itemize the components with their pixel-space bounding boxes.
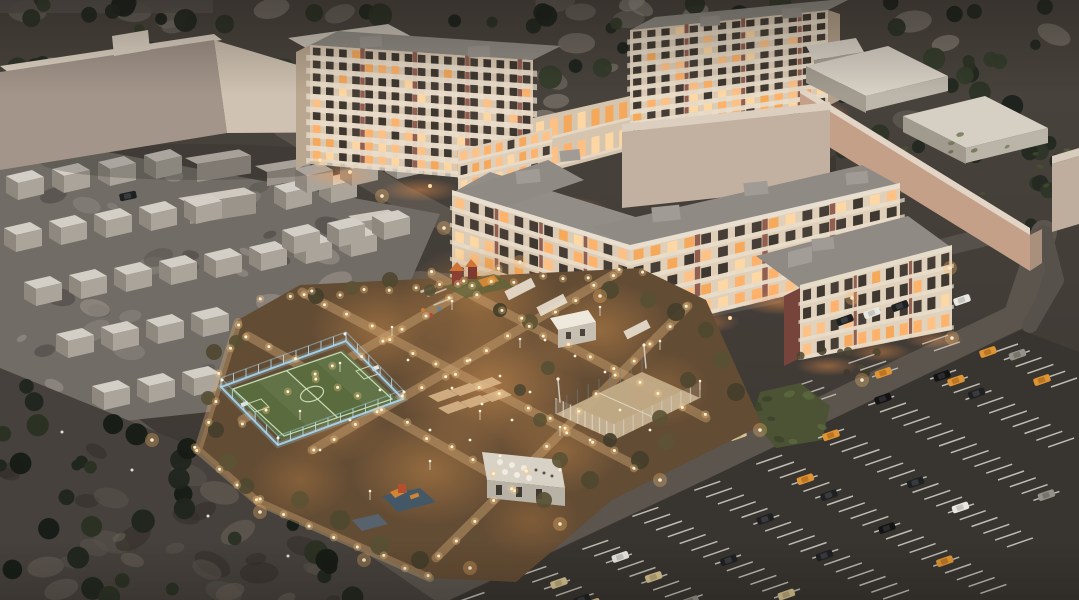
tree [27, 414, 49, 436]
window [844, 278, 852, 291]
path-light [561, 277, 564, 280]
light-dot [535, 469, 538, 472]
window [483, 126, 491, 135]
tree [103, 414, 123, 434]
window [858, 293, 866, 306]
tree [818, 346, 827, 355]
light-glow [796, 356, 860, 376]
lamp-head [699, 380, 702, 383]
window [352, 128, 360, 136]
lit-window [392, 118, 400, 126]
street-lamp [598, 294, 602, 298]
lit-window [461, 150, 468, 160]
lamp-head [339, 362, 342, 365]
path-light [310, 290, 313, 293]
lit-window [872, 270, 880, 284]
light-glow [300, 164, 380, 188]
lit-window [472, 148, 479, 158]
path-light [289, 295, 292, 298]
window [405, 106, 413, 114]
window [392, 105, 400, 113]
tree [844, 347, 853, 356]
window [676, 95, 684, 103]
path-light [444, 375, 447, 378]
window [927, 256, 935, 270]
light-dot [469, 439, 472, 442]
window [510, 128, 518, 137]
tree [844, 369, 850, 375]
path-light [425, 437, 428, 440]
window [378, 117, 386, 125]
path-light [577, 410, 580, 413]
window [431, 95, 439, 103]
window [914, 260, 922, 274]
path-light [498, 392, 501, 395]
lit-window [444, 162, 452, 171]
lit-window [591, 136, 599, 155]
lit-window [510, 114, 518, 123]
street-lamp [850, 296, 854, 300]
path-light [406, 421, 409, 424]
window [927, 276, 935, 290]
lamp-head [391, 326, 394, 329]
street-lamp [658, 478, 662, 482]
path-light [618, 268, 621, 271]
lit-window [564, 114, 572, 133]
lit-window [326, 152, 334, 160]
light-dot [509, 462, 515, 468]
lit-window [927, 317, 935, 331]
window [444, 149, 452, 158]
path-light [345, 313, 348, 316]
window [326, 113, 334, 121]
lit-window [418, 147, 426, 156]
light-dot [526, 475, 532, 481]
path-light [525, 470, 528, 473]
lit-window [760, 95, 768, 103]
lit-window [457, 137, 465, 146]
window [352, 115, 360, 123]
light-dot [649, 429, 652, 432]
light-dot [604, 371, 607, 374]
lit-window [661, 97, 669, 105]
tree [514, 384, 526, 396]
path-light [401, 394, 404, 397]
lit-window [392, 144, 400, 153]
lit-window [605, 105, 613, 123]
path-light [217, 372, 220, 375]
aerial-render [0, 0, 1079, 600]
path-light [259, 297, 262, 300]
tree [382, 272, 398, 288]
window [858, 274, 866, 287]
path-light [528, 325, 531, 328]
path-light [633, 360, 636, 363]
light-dot [589, 439, 592, 442]
window [405, 146, 413, 155]
path-light [314, 373, 317, 376]
path-light [282, 513, 285, 516]
path-light [323, 303, 326, 306]
path-light [450, 445, 453, 448]
lamp-head [519, 338, 522, 341]
street-lamp [950, 336, 954, 340]
light-dot [514, 472, 520, 478]
path-light [574, 299, 577, 302]
lit-window [803, 325, 811, 338]
light-dot [437, 307, 441, 311]
window [803, 307, 811, 320]
window [543, 146, 550, 156]
window [339, 140, 347, 148]
tree [698, 322, 714, 338]
window [431, 148, 439, 157]
path-light [388, 338, 391, 341]
path-light [312, 449, 315, 452]
window [457, 124, 465, 133]
lit-window [872, 328, 880, 341]
lit-window [418, 134, 426, 143]
path-light [656, 392, 659, 395]
path-light [400, 328, 403, 331]
path-light [641, 271, 644, 274]
path-light [303, 293, 306, 296]
path-light [638, 381, 641, 384]
tree [727, 383, 745, 401]
light-dot [728, 316, 732, 320]
lit-window [483, 112, 491, 121]
lit-window [313, 138, 321, 146]
window [378, 104, 386, 112]
window [510, 101, 518, 110]
path-light [472, 458, 475, 461]
path-light [336, 386, 339, 389]
window [470, 138, 478, 147]
tree [84, 461, 97, 474]
path-light [241, 422, 244, 425]
path-light [506, 334, 509, 337]
light-glow [380, 178, 460, 202]
path-light [500, 309, 503, 312]
path-light [420, 386, 423, 389]
lit-window [378, 143, 386, 151]
path-light [612, 274, 615, 277]
path-light [456, 282, 459, 285]
lit-window [543, 131, 550, 141]
lit-window [704, 103, 712, 111]
tree [797, 352, 805, 360]
path-light [236, 484, 239, 487]
light-dot [502, 469, 508, 475]
lit-window [418, 160, 426, 169]
lit-window [313, 125, 321, 133]
path-light [475, 293, 478, 296]
lit-window [431, 161, 439, 170]
street-lamp [518, 260, 522, 264]
light-dot [497, 459, 503, 465]
path-light [360, 355, 363, 358]
street-lamp [948, 266, 952, 270]
lit-window [378, 130, 386, 138]
tree [81, 516, 102, 537]
path-light [339, 293, 342, 296]
lit-window [858, 331, 866, 344]
lit-window [365, 129, 373, 137]
lit-window [352, 141, 360, 149]
window [457, 110, 465, 119]
path-light [430, 270, 433, 273]
window [444, 96, 452, 105]
tree [640, 292, 656, 308]
lamp-head [659, 340, 662, 343]
play-tower [468, 266, 477, 279]
path-light [567, 343, 570, 346]
tree [330, 510, 350, 530]
tree [345, 281, 359, 295]
path-light [331, 364, 334, 367]
window [886, 267, 894, 281]
path-light [454, 373, 457, 376]
tree [168, 468, 190, 490]
light-dot [574, 355, 577, 358]
street-lamp [758, 428, 762, 432]
light-dot [207, 515, 210, 518]
tree [10, 453, 32, 475]
path-light [492, 472, 495, 475]
window [817, 303, 825, 316]
path-light [613, 449, 616, 452]
light-dot [428, 184, 432, 188]
path-light [478, 386, 481, 389]
path-light [314, 378, 317, 381]
lit-window [392, 158, 400, 167]
lit-window [496, 142, 503, 152]
window [326, 100, 334, 108]
path-light [648, 342, 651, 345]
lit-window [718, 101, 726, 109]
path-light [308, 525, 311, 528]
light-dot [529, 391, 532, 394]
window [457, 97, 465, 106]
path-light [587, 276, 590, 279]
path-light [448, 296, 451, 299]
path-light [589, 355, 592, 358]
path-light [376, 410, 379, 413]
path-light [214, 400, 217, 403]
light-dot [469, 359, 472, 362]
path-light [218, 468, 221, 471]
tree [658, 434, 674, 450]
path-light [685, 305, 688, 308]
tree [174, 498, 195, 519]
window [365, 103, 373, 111]
path-light [381, 340, 384, 343]
path-light [510, 487, 513, 490]
tree [552, 452, 568, 468]
path-light [415, 286, 418, 289]
window [523, 102, 531, 111]
path-light [549, 417, 552, 420]
light-dot [556, 377, 559, 380]
lit-window [531, 134, 538, 144]
path-light [354, 423, 357, 426]
path-light [388, 289, 391, 292]
path-light [229, 347, 232, 350]
window [339, 114, 347, 122]
lit-window [831, 300, 839, 313]
tree [603, 433, 617, 447]
lit-window [605, 132, 613, 151]
path-light [207, 421, 210, 424]
tree [25, 392, 44, 411]
path-light [371, 324, 374, 327]
path-light [669, 325, 672, 328]
lit-window [647, 99, 655, 107]
tree [652, 410, 668, 426]
window [470, 111, 478, 120]
lit-window [483, 99, 491, 108]
path-light [542, 335, 545, 338]
lit-window [817, 322, 825, 335]
light-dot [499, 375, 502, 378]
window [365, 116, 373, 124]
tree [131, 509, 154, 532]
light-dot [221, 379, 224, 382]
tree [837, 349, 844, 356]
light-dot [551, 475, 554, 478]
window [817, 285, 825, 298]
tree [713, 351, 731, 369]
window [470, 98, 478, 107]
path-light [497, 267, 500, 270]
light-dot [348, 170, 352, 174]
window [444, 123, 452, 132]
lit-window [844, 334, 852, 347]
path-light [411, 352, 414, 355]
light-dot [131, 469, 134, 472]
path-light [462, 280, 465, 283]
street-lamp [442, 226, 446, 230]
light-dot [407, 359, 410, 362]
path-light [363, 288, 366, 291]
lit-window [591, 108, 599, 127]
window [444, 109, 452, 118]
path-light [438, 283, 441, 286]
lit-window [405, 132, 413, 141]
lit-window [531, 148, 538, 158]
path-light [527, 407, 530, 410]
path-light [512, 281, 515, 284]
lit-window [619, 101, 627, 119]
light-dot [421, 308, 425, 312]
light-dot [429, 429, 432, 432]
street-lamp [558, 522, 562, 526]
light-dot [451, 387, 454, 390]
path-light [614, 374, 617, 377]
lit-window [378, 156, 386, 165]
lit-window [508, 154, 515, 164]
street-lamp [380, 194, 384, 198]
window [676, 107, 684, 115]
window [831, 337, 839, 350]
lit-window [519, 151, 526, 161]
lit-window [941, 314, 949, 328]
path-light [294, 357, 297, 360]
lit-window [519, 137, 526, 147]
street-lamp [318, 158, 322, 162]
light-dot [642, 343, 645, 346]
path-light [193, 446, 196, 449]
tree [19, 379, 34, 394]
path-light [545, 445, 548, 448]
lit-window [326, 139, 334, 147]
window [418, 120, 426, 129]
window [914, 300, 922, 314]
window [339, 101, 347, 109]
tree [125, 423, 147, 445]
lit-window [746, 97, 754, 105]
tree [536, 492, 552, 508]
lamp-head [599, 306, 602, 309]
window [418, 107, 426, 115]
path-light [542, 274, 545, 277]
lit-window [900, 323, 908, 336]
path-light [356, 394, 359, 397]
path-light [466, 359, 469, 362]
path-light [473, 520, 476, 523]
window [313, 112, 321, 120]
lit-window [313, 99, 321, 107]
lamp-head [559, 426, 562, 429]
path-light [286, 390, 289, 393]
lit-window [365, 142, 373, 150]
lamp-head [369, 490, 372, 493]
path-light [681, 406, 684, 409]
window [461, 165, 468, 175]
lamp-head [479, 410, 482, 413]
render-viewport [0, 0, 1079, 600]
tree [424, 284, 436, 296]
lit-window [633, 113, 641, 121]
path-light [490, 280, 493, 283]
window [900, 263, 908, 277]
window [339, 153, 347, 161]
lit-window [690, 105, 698, 113]
light-dot [61, 431, 64, 434]
window [326, 126, 334, 134]
light-dot [344, 333, 347, 336]
window [497, 113, 505, 122]
window [831, 281, 839, 294]
lit-window [484, 145, 491, 155]
window [927, 296, 935, 310]
path-light [520, 317, 523, 320]
path-light [332, 536, 335, 539]
lit-window [803, 343, 811, 356]
light-dot [319, 449, 322, 452]
path-light [612, 367, 615, 370]
lit-window [886, 325, 894, 338]
tree [291, 491, 309, 509]
street-lamp [860, 378, 864, 382]
window [352, 102, 360, 110]
window [405, 119, 413, 127]
path-light [471, 284, 474, 287]
lit-window [418, 94, 426, 102]
tree [541, 361, 555, 375]
window [405, 159, 413, 168]
window [431, 108, 439, 117]
